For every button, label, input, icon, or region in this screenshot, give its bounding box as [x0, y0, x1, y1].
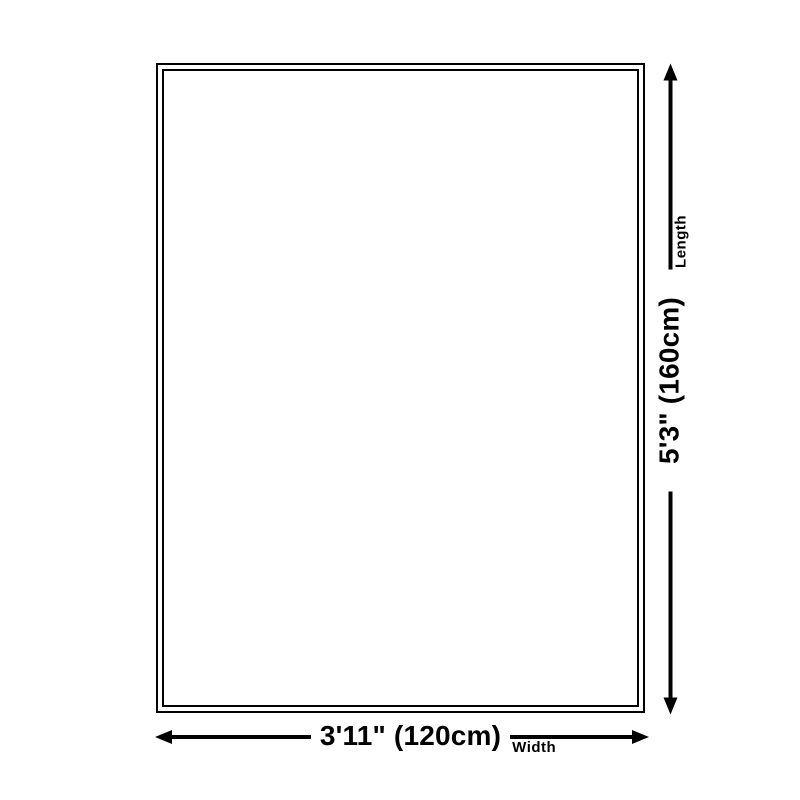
width-value-label: 3'11" (120cm) — [320, 722, 501, 752]
length-dimension: 5'3" (160cm) Length — [648, 63, 692, 714]
rug-outline — [156, 63, 645, 713]
rug-dimension-diagram: 5'3" (160cm) Length 3'11" (120cm) Width — [0, 0, 800, 800]
width-dimension-tail: Width — [510, 715, 649, 759]
arrow-down-icon — [663, 697, 677, 714]
length-dimension-tail: Length — [648, 63, 692, 269]
arrow-right-icon — [632, 730, 649, 744]
arrow-left-icon — [155, 730, 172, 744]
rug-outline-inner — [162, 69, 639, 707]
width-axis-label: Width — [512, 740, 556, 757]
width-dimension-line-left — [172, 735, 311, 739]
length-value-label: 5'3" (160cm) — [655, 296, 685, 463]
width-dimension: 3'11" (120cm) Width — [155, 715, 649, 759]
length-dimension-line-upper — [668, 80, 672, 269]
length-axis-label: Length — [673, 214, 690, 267]
arrow-up-icon — [663, 63, 677, 80]
length-dimension-line-lower — [668, 491, 672, 697]
